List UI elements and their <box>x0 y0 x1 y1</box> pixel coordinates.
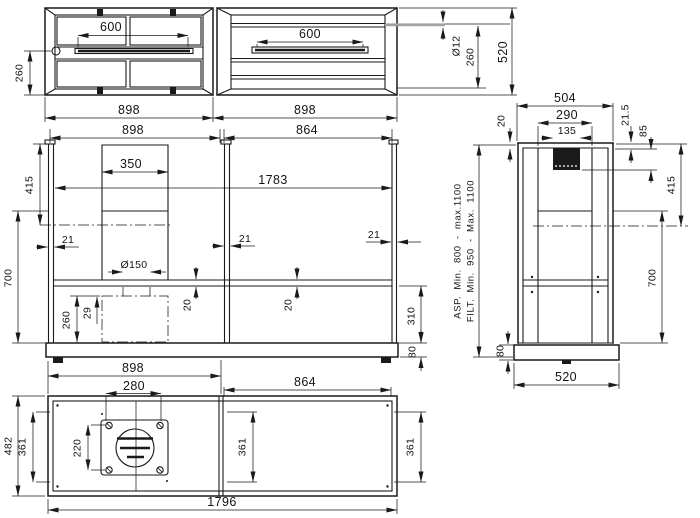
dim-span: 1783 <box>258 173 287 187</box>
dim-plate-height: 220 <box>72 439 84 457</box>
dim-top-frame: 20 <box>496 115 508 127</box>
dim-duct-width: 135 <box>558 125 576 137</box>
mounting-hole <box>52 47 60 55</box>
dim-bay-right: 361 <box>405 438 417 456</box>
dim-panel-thickness: 21 <box>239 233 251 245</box>
width-dims: 898 898 898 864 <box>45 97 397 143</box>
foot <box>53 357 63 363</box>
clip <box>170 87 176 94</box>
dim-shelf-thickness: 20 <box>283 299 295 311</box>
dim-filter-gap: 29 <box>82 307 94 319</box>
dim-chimney-width: 350 <box>120 157 142 171</box>
dim-plan-left-width: 898 <box>118 103 140 117</box>
plan-dims-right: Ø12 260 520 <box>397 8 517 95</box>
dim-inner-depth: 290 <box>556 108 578 122</box>
dim-rod-offset: 260 <box>465 48 477 66</box>
dim-plan-right-slot: 600 <box>299 27 321 41</box>
side-view: 504 290 135 20 21.5 85 415 700 ASP. Min.… <box>453 91 689 389</box>
dim-rod-diameter: Ø12 <box>451 36 463 57</box>
dim-plate-width: 280 <box>123 379 145 393</box>
dim-side-body-height: 700 <box>647 269 659 287</box>
dim-duct-diameter: Ø150 <box>121 259 148 271</box>
dim-plan-depth: 520 <box>496 41 510 63</box>
dim-bottom-depth: 482 <box>3 437 15 455</box>
dim-front-section-left: 898 <box>122 123 144 137</box>
dim-side-upper-height: 415 <box>666 176 678 194</box>
dim-bay-mid: 361 <box>237 438 249 456</box>
clip <box>170 9 176 16</box>
foot <box>381 357 391 363</box>
dim-filter-height: 260 <box>61 311 73 329</box>
hood-dimension-drawing: 600 260 600 Ø12 260 520 898 898 <box>0 0 700 518</box>
front-view: 350 1783 415 700 21 21 21 Ø150 260 29 20… <box>3 140 428 394</box>
panel-bottom-right <box>130 61 201 87</box>
dim-panel-thickness: 21 <box>368 229 380 241</box>
dim-rear-gap: 21.5 <box>620 104 632 126</box>
panel-bottom-left <box>57 61 126 87</box>
dim-plan-right-width: 898 <box>294 103 316 117</box>
bottom-view: 280 864 220 361 482 361 361 1796 <box>3 375 427 514</box>
dim-base-height: 80 <box>407 346 419 358</box>
dim-base-width: 898 <box>122 361 144 375</box>
clip <box>97 9 103 16</box>
label-filt-range: FILT. Min. 950 - Max. 1100 <box>466 180 477 322</box>
dim-lower-height: 310 <box>406 307 418 325</box>
technical-drawing-page: 600 260 600 Ø12 260 520 898 898 <box>0 0 700 518</box>
dim-duct-drop: 85 <box>638 125 650 137</box>
plan-view-left: 600 260 <box>14 8 214 95</box>
dim-shelf-thickness: 20 <box>182 299 194 311</box>
dim-side-depth: 504 <box>554 91 576 105</box>
filter-zone <box>102 296 168 342</box>
dim-front-section-right: 864 <box>296 123 318 137</box>
dim-plan-left-offset: 260 <box>14 64 26 82</box>
base-plinth-side <box>514 345 619 360</box>
base-plinth <box>46 343 398 357</box>
label-asp-range: ASP. Min. 800 - max.1100 <box>453 183 464 318</box>
foot <box>562 360 571 364</box>
panel-top-right <box>130 17 201 45</box>
dim-base-depth: 520 <box>555 370 577 384</box>
dim-overall-length: 1796 <box>207 495 236 509</box>
dim-plan-left-slot: 600 <box>100 20 122 34</box>
dim-body-height: 700 <box>3 269 15 287</box>
dim-bottom-section-right: 864 <box>294 375 316 389</box>
dim-panel-thickness: 21 <box>62 234 74 246</box>
duct-stub <box>553 148 580 170</box>
clip <box>97 87 103 94</box>
dim-upper-height: 415 <box>24 176 36 194</box>
dim-side-base-height: 80 <box>495 345 507 357</box>
